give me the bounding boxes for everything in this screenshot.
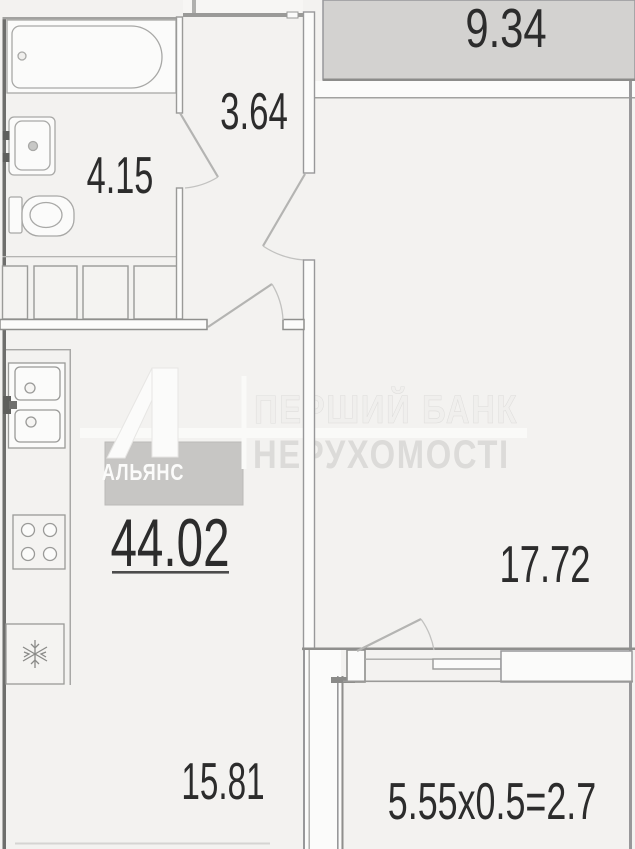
- svg-text:АЛЬЯНС: АЛЬЯНС: [102, 460, 184, 486]
- svg-text:44.02: 44.02: [110, 506, 229, 581]
- svg-text:5.55x0.5=2.7: 5.55x0.5=2.7: [388, 774, 596, 831]
- svg-text:ПЕРШИЙ БАНК: ПЕРШИЙ БАНК: [254, 386, 518, 432]
- svg-text:17.72: 17.72: [499, 534, 590, 593]
- svg-text:3.64: 3.64: [220, 83, 288, 141]
- svg-text:15.81: 15.81: [181, 753, 264, 811]
- svg-text:9.34: 9.34: [465, 0, 546, 59]
- svg-text:НЕРУХОМОСТІ: НЕРУХОМОСТІ: [253, 432, 510, 477]
- svg-text:4.15: 4.15: [87, 147, 154, 205]
